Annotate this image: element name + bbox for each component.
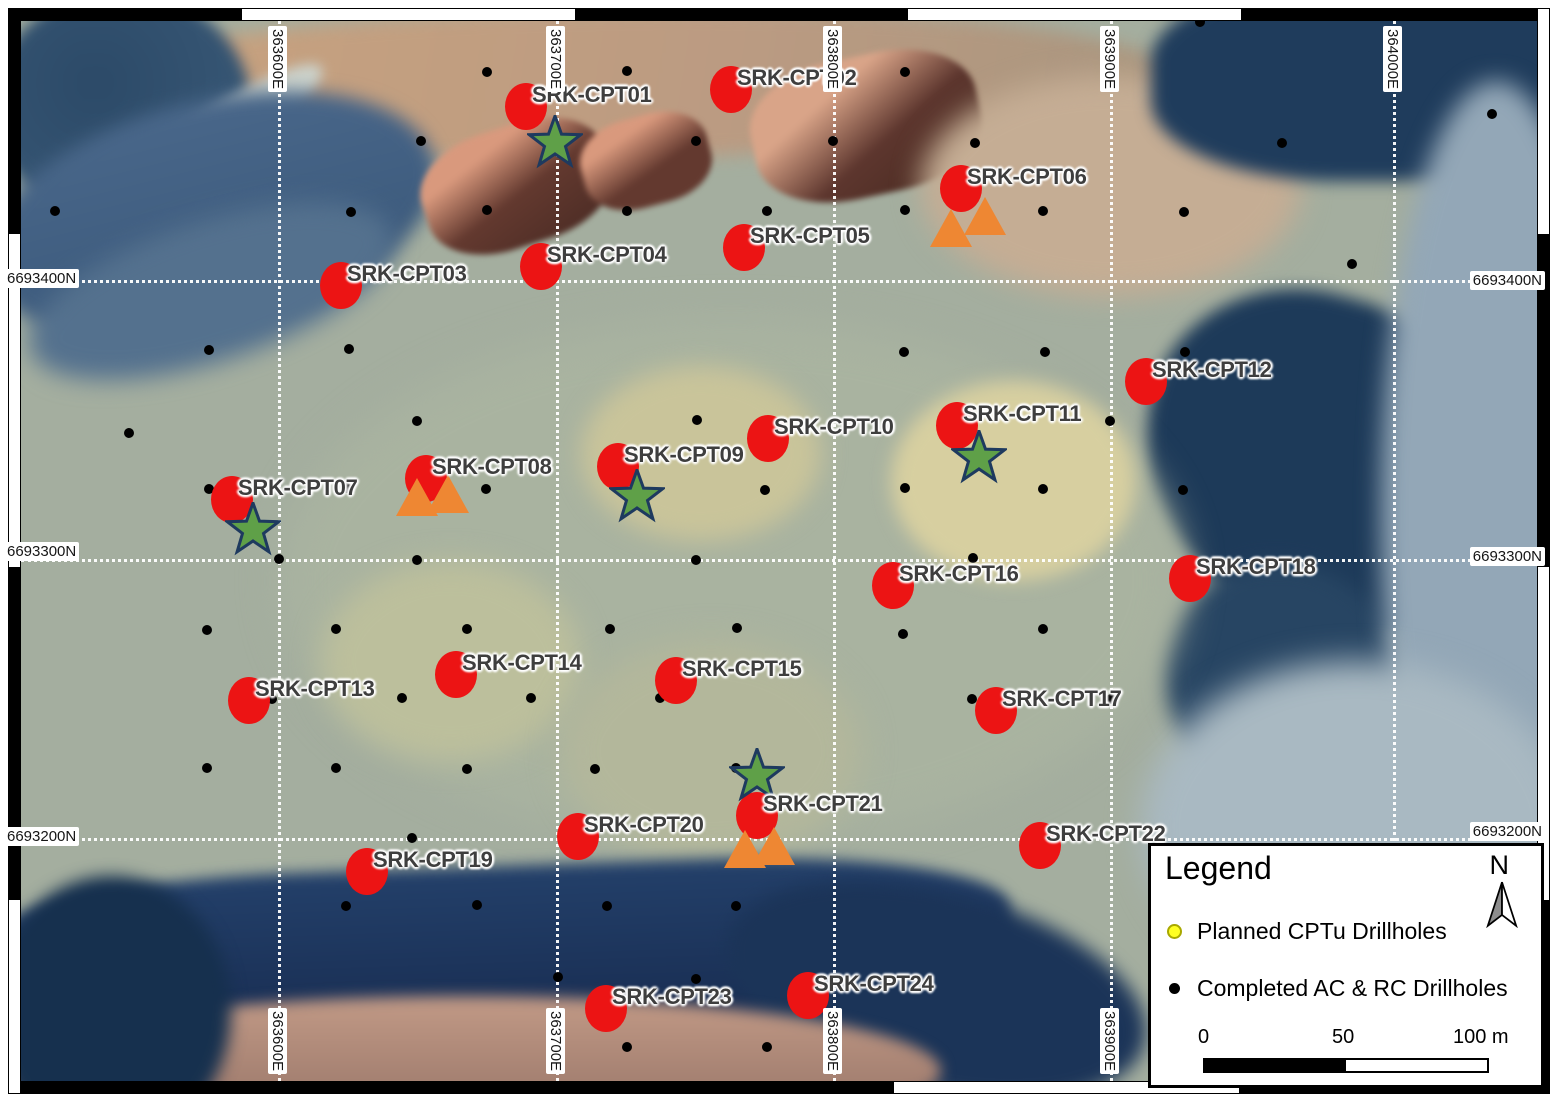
completed-drillhole-dot <box>344 344 354 354</box>
completed-drillhole-dot <box>1277 138 1287 148</box>
completed-drillhole-dot <box>1038 624 1048 634</box>
planned-cptu-marker-label: SRK-CPT09 <box>624 442 744 468</box>
neatline-top <box>8 8 1550 21</box>
completed-drillhole-dot <box>900 205 910 215</box>
completed-drillhole-dot <box>1178 485 1188 495</box>
coordinate-label-bottom: 363600E <box>268 1008 287 1074</box>
legend-item: Completed AC & RC Drillholes <box>1167 975 1508 1002</box>
completed-drillhole-dot <box>898 629 908 639</box>
coordinate-label-bottom: 363900E <box>1100 1008 1119 1074</box>
completed-drillhole-dot <box>900 483 910 493</box>
planned-cptu-marker-label: SRK-CPT08 <box>432 454 552 480</box>
planned-cptu-marker-label: SRK-CPT23 <box>612 984 732 1010</box>
coordinate-label-bottom: 363800E <box>823 1008 842 1074</box>
coordinate-label-left: 6693400N <box>4 269 79 288</box>
coordinate-label-top: 363800E <box>823 26 842 92</box>
planned-cptu-marker-label: SRK-CPT15 <box>682 656 802 682</box>
gridline-horizontal <box>21 280 1537 283</box>
completed-drillhole-dot <box>692 415 702 425</box>
completed-drillhole-dot <box>1038 206 1048 216</box>
legend-box: Legend N Planned CPTu DrillholesComplete… <box>1148 843 1544 1088</box>
planned-cptu-marker-label: SRK-CPT20 <box>584 812 704 838</box>
star-marker <box>951 430 1007 491</box>
completed-drillhole-dot <box>760 485 770 495</box>
completed-drillhole-dot <box>412 416 422 426</box>
completed-drillhole-dot <box>1038 484 1048 494</box>
completed-drillhole-dot <box>202 625 212 635</box>
coordinate-label-left: 6693200N <box>4 827 79 846</box>
completed-drillhole-dot <box>462 624 472 634</box>
completed-drillhole-dot <box>482 205 492 215</box>
coordinate-label-left: 6693300N <box>4 542 79 561</box>
coordinate-label-top: 363900E <box>1100 26 1119 92</box>
completed-drillhole-dot <box>346 207 356 217</box>
planned-cptu-marker-label: SRK-CPT17 <box>1002 686 1122 712</box>
completed-drillhole-dot <box>1487 109 1497 119</box>
coordinate-label-bottom: 363700E <box>546 1008 565 1074</box>
star-marker <box>527 115 583 176</box>
completed-drillhole-dot <box>622 206 632 216</box>
completed-drillhole-dot <box>341 901 351 911</box>
completed-drillhole-dot <box>1040 347 1050 357</box>
completed-drillhole-dot <box>732 623 742 633</box>
completed-drillhole-dot <box>828 136 838 146</box>
scale-bar-empty-segment <box>1346 1060 1487 1071</box>
completed-drillhole-dot <box>691 555 701 565</box>
completed-drillhole-dot <box>605 624 615 634</box>
coordinate-label-top: 363600E <box>268 26 287 92</box>
completed-drillhole-dot <box>331 624 341 634</box>
completed-drillhole-legend-symbol <box>1169 983 1180 994</box>
triangle-marker <box>426 474 470 519</box>
completed-drillhole-dot <box>481 484 491 494</box>
completed-drillhole-dot <box>1179 207 1189 217</box>
completed-drillhole-dot <box>622 1042 632 1052</box>
legend-item: Planned CPTu Drillholes <box>1167 918 1447 945</box>
planned-cptu-marker-label: SRK-CPT03 <box>347 261 467 287</box>
completed-drillhole-dot <box>407 833 417 843</box>
completed-drillhole-dot <box>1347 259 1357 269</box>
coordinate-label-right: 6693400N <box>1470 271 1545 290</box>
star-marker <box>609 469 665 530</box>
scalebar-label-100m: 100 m <box>1453 1026 1509 1049</box>
completed-drillhole-dot <box>482 67 492 77</box>
completed-drillhole-dot <box>1180 347 1190 357</box>
completed-drillhole-dot <box>526 693 536 703</box>
coordinate-label-right: 6693300N <box>1470 547 1545 566</box>
planned-cptu-marker-label: SRK-CPT18 <box>1196 554 1316 580</box>
star-marker <box>225 502 281 563</box>
triangle-marker <box>752 826 796 871</box>
planned-cptu-marker-label: SRK-CPT13 <box>255 676 375 702</box>
completed-drillhole-dot <box>472 900 482 910</box>
completed-drillhole-dot <box>124 428 134 438</box>
completed-drillhole-dot <box>462 764 472 774</box>
scalebar-label-0: 0 <box>1198 1026 1209 1049</box>
planned-cptu-marker-label: SRK-CPT12 <box>1152 357 1272 383</box>
planned-cptu-legend-symbol <box>1167 924 1182 939</box>
completed-drillhole-dot <box>204 345 214 355</box>
completed-drillhole-dot <box>622 66 632 76</box>
planned-cptu-marker-label: SRK-CPT05 <box>750 223 870 249</box>
completed-drillhole-dot <box>412 555 422 565</box>
gridline-vertical <box>833 21 836 1081</box>
completed-drillhole-dot <box>416 136 426 146</box>
coordinate-label-right: 6693200N <box>1470 822 1545 841</box>
scale-bar-filled-segment <box>1205 1060 1346 1071</box>
planned-cptu-marker-label: SRK-CPT16 <box>899 561 1019 587</box>
planned-cptu-marker-label: SRK-CPT04 <box>547 242 667 268</box>
completed-drillhole-dot <box>691 974 701 984</box>
completed-drillhole-dot <box>900 67 910 77</box>
planned-cptu-marker-label: SRK-CPT07 <box>238 475 358 501</box>
completed-drillhole-dot <box>762 1042 772 1052</box>
gridline-vertical <box>1110 21 1113 1081</box>
gridline-vertical <box>556 21 559 1081</box>
planned-cptu-marker-label: SRK-CPT11 <box>963 401 1081 427</box>
legend-item-label: Planned CPTu Drillholes <box>1197 918 1447 945</box>
coordinate-label-top: 363700E <box>546 26 565 92</box>
completed-drillhole-dot <box>1105 416 1115 426</box>
coordinate-label-top: 364000E <box>1383 26 1402 92</box>
planned-cptu-marker-label: SRK-CPT14 <box>462 650 582 676</box>
completed-drillhole-dot <box>762 206 772 216</box>
completed-drillhole-dot <box>970 138 980 148</box>
completed-drillhole-dot <box>899 347 909 357</box>
completed-drillhole-dot <box>691 136 701 146</box>
completed-drillhole-dot <box>602 901 612 911</box>
legend-title: Legend <box>1165 850 1272 887</box>
planned-cptu-marker-label: SRK-CPT19 <box>373 847 493 873</box>
completed-drillhole-dot <box>590 764 600 774</box>
planned-cptu-marker-label: SRK-CPT10 <box>774 414 894 440</box>
completed-drillhole-dot <box>202 763 212 773</box>
planned-cptu-marker-label: SRK-CPT24 <box>814 971 934 997</box>
scale-bar <box>1203 1058 1489 1073</box>
planned-cptu-marker-label: SRK-CPT06 <box>967 164 1087 190</box>
planned-cptu-marker-label: SRK-CPT21 <box>763 791 883 817</box>
completed-drillhole-dot <box>553 972 563 982</box>
legend-item-label: Completed AC & RC Drillholes <box>1197 975 1508 1002</box>
triangle-marker <box>963 196 1007 241</box>
scalebar-label-50: 50 <box>1332 1026 1354 1049</box>
completed-drillhole-dot <box>50 206 60 216</box>
north-label: N <box>1490 850 1510 881</box>
north-arrow-icon <box>1485 880 1519 928</box>
map-figure: SRK-CPT01SRK-CPT02SRK-CPT03SRK-CPT04SRK-… <box>0 0 1558 1102</box>
completed-drillhole-dot <box>397 693 407 703</box>
completed-drillhole-dot <box>731 901 741 911</box>
completed-drillhole-dot <box>331 763 341 773</box>
